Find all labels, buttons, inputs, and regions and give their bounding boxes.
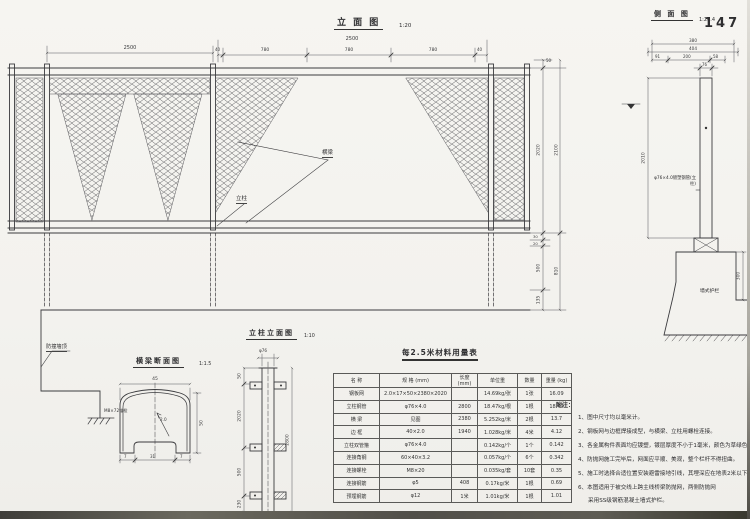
table-column-header: 长度 (mm) [452,374,478,388]
embedded-posts [45,233,494,308]
side-view-scale: 1:20.4 [699,17,715,23]
beam-dim-b3: 7 [180,454,183,459]
table-cell: 连接角钢 [334,451,380,464]
dim-40-right: 40 [477,47,482,52]
table-row: 连接螺栓M8×200.035kg/套10套0.35 [334,464,572,477]
table-column-header: 规 格 (mm) [380,374,452,388]
dim-780-2: 780 [337,48,361,53]
beam-dim-thickness: 2.0 [160,417,167,422]
notes-list: 1、图中尺寸均以毫米计。2、钢板网与边框焊接成型，与横梁、立柱用螺栓连接。3、各… [556,412,750,509]
table-cell: 16.09 [542,388,572,401]
note-item: 3、各金属构件表面均应镀塑，镀层厚度不小于1毫米，颜色为草绿色。 [578,440,750,454]
table-cell: 1张 [518,388,542,401]
dim-40-left: 40 [215,47,220,52]
table-cell: 连接螺栓 [334,464,380,477]
table-cell [452,451,478,464]
table-row: 横 梁见图23805.252kg/米2根13.7 [334,413,572,426]
table-row: 立柱钢管φ76×4.0280018.47kg/根1根18.47 [334,400,572,413]
ground-hatch [665,335,747,341]
elevation-drawing [8,40,566,424]
beam-section-scale: 1:1.5 [199,362,211,367]
table-cell: 1根 [518,400,542,413]
dim-58: 58 [713,54,718,59]
column-dim-total: 2800 [286,434,291,445]
dim-300: 300 [737,272,742,281]
table-cell: 1.01kg/米 [478,490,518,503]
table-row: 边 框40×2.019401.028kg/米4米4.12 [334,426,572,439]
dim-780-1: 780 [253,48,277,53]
table-column-header: 重量 (kg) [542,374,572,388]
column-view-scale: 1:10 [304,334,315,339]
elevation-view-title: 立 面 图 [334,15,383,30]
table-row: 预埋钢筋φ121米1.01kg/米1根1.01 [334,490,572,503]
table-cell: 18.47kg/根 [478,400,518,413]
table-cell: 1940 [452,426,478,439]
table-cell: 408 [452,477,478,490]
column-view-title: 立柱立面图 [246,328,297,340]
table-cell: φ76×4.0 [380,400,452,413]
table-cell: 2380 [452,413,478,426]
side-view-drawing [622,40,750,341]
table-cell: 0.17kg/米 [478,477,518,490]
table-cell: 2800 [452,400,478,413]
side-post-callout: φ76×4.0镀塑钢管(立柱) [652,176,696,189]
beam-dim-b2: 31 [150,454,155,459]
table-row: 立柱双管箍φ76×4.00.142kg/个1个0.142 [334,439,572,452]
ground-symbol [88,418,114,424]
dim-span-mid: 2500 [330,36,374,42]
table-cell: 预埋钢筋 [334,490,380,503]
table-cell: M8×20 [380,464,452,477]
table-cell: 横 梁 [334,413,380,426]
table-cell: 0.057kg/个 [478,451,518,464]
scan-edge-bottom [0,511,750,519]
column-dim-4: 230 [238,500,243,509]
table-cell: 60×40×3.2 [380,451,452,464]
notes-block: 附注： 1、图中尺寸均以毫米计。2、钢板网与边框焊接成型，与横梁、立柱用螺栓连接… [556,400,750,509]
table-cell: 边 框 [334,426,380,439]
beam-section-drawing [120,383,201,463]
dim-2010: 2010 [642,152,647,163]
table-row: 钢板网2.0×17×50×2380×202014.69kg/张1张16.09 [334,388,572,401]
table-cell: 立柱双管箍 [334,439,380,452]
beam-callout: 横梁 [322,148,333,158]
table-cell: φ5 [380,477,452,490]
table-column-header: 数量 [518,374,542,388]
dim-135: 135 [537,296,542,305]
note-item: 6、本图适用于被交线上跨主线桥梁防抛网，两侧防抛网 [578,482,750,496]
note-item: 5、施工时选择合适位置安装避雷接地引线，其埋深应在地表2米以下。 [578,468,750,482]
table-cell: 1.028kg/米 [478,426,518,439]
table-cell: 6个 [518,451,542,464]
beam-dim-width: 45 [147,377,163,382]
table-column-header: 名 称 [334,374,380,388]
table-row: 连接角钢60×40×3.20.057kg/个6个0.342 [334,451,572,464]
dim-380: 380 [679,38,707,43]
note-item: 2、钢板网与边框焊接成型，与横梁、立柱用螺栓连接。 [578,426,750,440]
table-cell [452,439,478,452]
table-cell: 1米 [452,490,478,503]
column-dim-3: 500 [238,468,243,477]
wall-top-callout: 防撞墙顶 [46,343,67,352]
dim-20: 20 [533,241,538,246]
note-item: 采用SS级钢筋混凝土墙式护栏。 [578,495,750,509]
drawing-sheet: 立 面 图 1:20 147 侧 面 图 1:20.4 2500 2500 40… [0,0,750,519]
table-row: 连接钢筋φ54080.17kg/米1根0.69 [334,477,572,490]
dim-200: 200 [683,54,691,59]
dim-50: 50 [546,58,551,63]
table-cell: 10套 [518,464,542,477]
table-cell: φ12 [380,490,452,503]
dim-2020: 2020 [537,144,542,155]
dim-30: 30 [533,234,538,239]
table-cell: 1个 [518,439,542,452]
table-cell: 40×2.0 [380,426,452,439]
dim-2100: 2100 [555,144,560,155]
anchor-bolt-callout: M8×72锚栓 [104,408,128,414]
table-cell: 0.142kg/个 [478,439,518,452]
table-cell: 5.252kg/米 [478,413,518,426]
table-column-header: 单位重 [478,374,518,388]
beam-dim-b1: 7 [124,454,127,459]
note-item: 1、图中尺寸均以毫米计。 [578,412,750,426]
materials-table: 名 称规 格 (mm)长度 (mm)单位重数量重量 (kg) 钢板网2.0×17… [333,373,572,503]
table-cell: 钢板网 [334,388,380,401]
materials-table-header: 名 称规 格 (mm)长度 (mm)单位重数量重量 (kg) [334,374,572,388]
table-cell [452,388,478,401]
column-dim-2: 2020 [238,410,243,421]
column-dim-1: 50 [238,373,243,379]
mesh-panels [16,78,524,222]
post-callout: 立柱 [236,194,247,204]
table-cell: 14.69kg/张 [478,388,518,401]
table-cell: 2根 [518,413,542,426]
materials-table-title: 每2.5米材料用量表 [402,347,478,361]
dim-span-left: 2500 [108,45,152,51]
beam-section-title: 横梁断面图 [133,356,184,368]
table-cell: 0.035kg/套 [478,464,518,477]
notes-heading: 附注： [556,400,750,409]
dim-500: 500 [537,264,542,273]
dim-404: 404 [679,46,707,51]
table-cell: 2.0×17×50×2380×2020 [380,388,452,401]
elevation-view-scale: 1:20 [399,23,411,29]
note-item: 4、防抛网施工完毕后，网面应平顺、美观，整个栏杆不得扭曲。 [578,454,750,468]
table-cell: 1根 [518,490,542,503]
dim-91: 91 [655,54,660,59]
dim-810: 810 [555,267,560,276]
beam-dim-height: 50 [200,420,205,426]
table-cell: 1根 [518,477,542,490]
wall-type-callout: 墙式护栏 [700,287,719,294]
dim-phi76: φ76 [259,348,267,353]
dim-76: 76 [702,62,707,67]
table-cell: 4米 [518,426,542,439]
table-cell: φ76×4.0 [380,439,452,452]
table-cell: 立柱钢管 [334,400,380,413]
side-view-title: 侧 面 图 [651,9,693,21]
table-cell: 见图 [380,413,452,426]
dim-780-3: 780 [421,48,445,53]
table-cell [452,464,478,477]
table-cell: 连接钢筋 [334,477,380,490]
